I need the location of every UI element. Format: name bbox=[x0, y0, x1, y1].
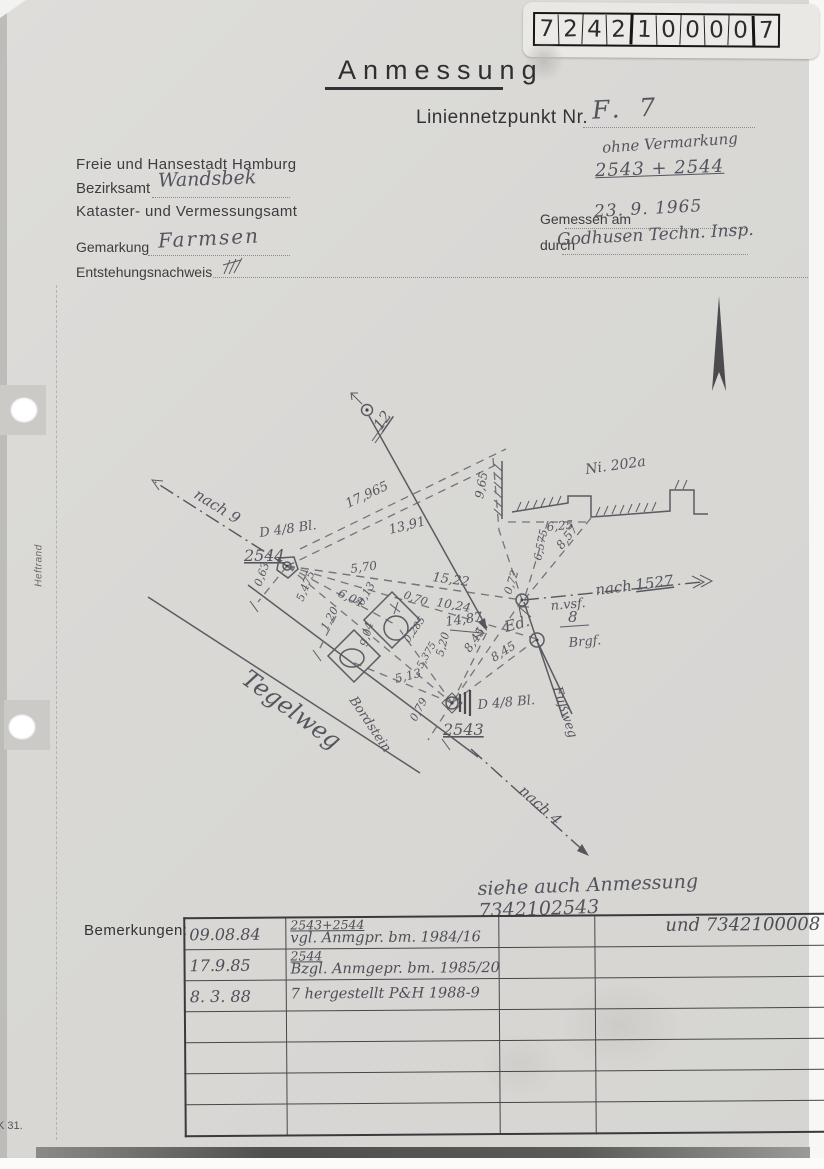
arrowhead bbox=[692, 575, 712, 588]
remark-empty-cell bbox=[499, 947, 595, 979]
sketch-label: 5,13 bbox=[393, 666, 423, 686]
arrowhead bbox=[152, 480, 163, 490]
sketch-label: 15,22 bbox=[431, 570, 470, 590]
sketch-label: 13,91 bbox=[387, 514, 427, 538]
sketch-label: 0,285 bbox=[402, 615, 427, 645]
remark-text: 2544Bzgl. Anmgepr. bm. 1985/20 bbox=[286, 948, 499, 980]
remarks-row: 17.9.852544Bzgl. Anmgepr. bm. 1985/20 bbox=[184, 945, 824, 980]
sketch-label: Ni. 202a bbox=[583, 454, 646, 478]
remark-date: 8. 3. 88 bbox=[185, 980, 287, 1012]
remark-date: 17.9.85 bbox=[184, 949, 286, 981]
remark-right-cell bbox=[595, 976, 824, 1009]
remark-right-cell bbox=[596, 1069, 824, 1102]
sketch-label: 0,72 bbox=[501, 569, 521, 596]
sketch-label: 9,04 bbox=[357, 621, 376, 648]
remark-right-cell bbox=[596, 1100, 824, 1133]
remarks-row: 09.08.842543+2544vgl. Anmgpr. bm. 1984/1… bbox=[184, 914, 824, 950]
scanned-document-page: Heftrand 7242100007 Anmessung Liniennetz… bbox=[0, 0, 824, 1169]
remark-date bbox=[185, 1011, 287, 1043]
remarks-row bbox=[185, 1038, 824, 1073]
remark-empty-cell bbox=[500, 1102, 596, 1134]
sketch-label: Fußweg bbox=[549, 684, 580, 740]
sketch-label: 6,575 bbox=[531, 528, 550, 562]
remark-right-cell bbox=[595, 1007, 824, 1040]
remarks-table-wrap: 09.08.842543+2544vgl. Anmgpr. bm. 1984/1… bbox=[183, 913, 824, 1137]
sketch-label: 0,13 bbox=[354, 580, 378, 608]
sketch-label: Ed. bbox=[501, 612, 531, 636]
remark-right-cell bbox=[596, 1038, 824, 1071]
manhole-circle bbox=[340, 649, 364, 667]
entstehungsnachweis-mark bbox=[223, 258, 242, 274]
remarks-row: 8. 3. 887 hergestellt P&H 1988-9 bbox=[185, 976, 824, 1011]
remarks-row bbox=[186, 1100, 824, 1136]
remark-text bbox=[287, 1072, 500, 1104]
sketch-label: 8 bbox=[568, 608, 578, 626]
remark-empty-cell bbox=[499, 1009, 595, 1041]
remarks-row bbox=[185, 1007, 824, 1042]
remark-text: 2543+2544vgl. Anmgpr. bm. 1984/16 bbox=[286, 916, 499, 949]
remark-empty-cell bbox=[499, 915, 595, 947]
remarks-table: 09.08.842543+2544vgl. Anmgpr. bm. 1984/1… bbox=[183, 913, 824, 1137]
sketch-label: 9,65 bbox=[472, 471, 490, 500]
sketch-label: 1,20 bbox=[318, 605, 341, 633]
sketch-label: Brgf. bbox=[567, 633, 602, 651]
remark-text bbox=[287, 1103, 500, 1136]
sketch-label: 5,475 bbox=[294, 569, 318, 603]
remark-empty-cell bbox=[499, 978, 595, 1010]
point-12-dot bbox=[365, 408, 368, 411]
sketch-label: Tegelweg bbox=[236, 664, 346, 755]
sketch-label: D 4/8 Bl. bbox=[257, 518, 317, 541]
remark-empty-cell bbox=[500, 1040, 596, 1072]
bemerkungen-label: Bemerkungen: bbox=[84, 922, 188, 939]
remark-date bbox=[185, 1042, 287, 1074]
sketch-label: 5,70 bbox=[349, 558, 378, 576]
manhole-mark bbox=[390, 602, 400, 614]
north-arrow-icon bbox=[712, 296, 726, 391]
point-2543-dot bbox=[450, 701, 453, 704]
remark-text: 7 hergestellt P&H 1988-9 bbox=[286, 979, 499, 1011]
remarks-row bbox=[185, 1069, 824, 1104]
measure-line bbox=[287, 462, 502, 566]
point-2544-dot bbox=[286, 565, 289, 568]
footpath-point-dot bbox=[536, 639, 539, 642]
remark-empty-cell bbox=[500, 1071, 596, 1103]
remark-text bbox=[286, 1010, 499, 1042]
remark-date: 09.08.84 bbox=[184, 918, 286, 950]
remark-text bbox=[287, 1041, 500, 1073]
sketch-label: Bordstein bbox=[345, 693, 394, 755]
remark-right-cell bbox=[595, 945, 824, 978]
sketch-label: 17,965 bbox=[343, 479, 391, 512]
sketch-label: nach bbox=[594, 577, 633, 599]
sketch-label: D 4/8 Bl. bbox=[476, 693, 536, 713]
sketch-label: 1527 bbox=[634, 571, 675, 594]
sketch-label: 2543 bbox=[442, 720, 484, 739]
sketch-labels-group: nach 91217,96513,91Ni. 202a9,656,256,575… bbox=[191, 407, 675, 829]
sketch-label: 8,45 bbox=[488, 639, 518, 665]
sketch-label: nach 4 bbox=[515, 782, 565, 829]
remark-right-cell: und 7342100008 bbox=[595, 914, 824, 947]
remark-date bbox=[185, 1073, 287, 1105]
remark-date bbox=[186, 1104, 288, 1136]
sketch-label: 12 bbox=[370, 407, 396, 433]
form-code: K 31. bbox=[0, 1120, 23, 1132]
point-nvsf-dot bbox=[521, 599, 524, 602]
